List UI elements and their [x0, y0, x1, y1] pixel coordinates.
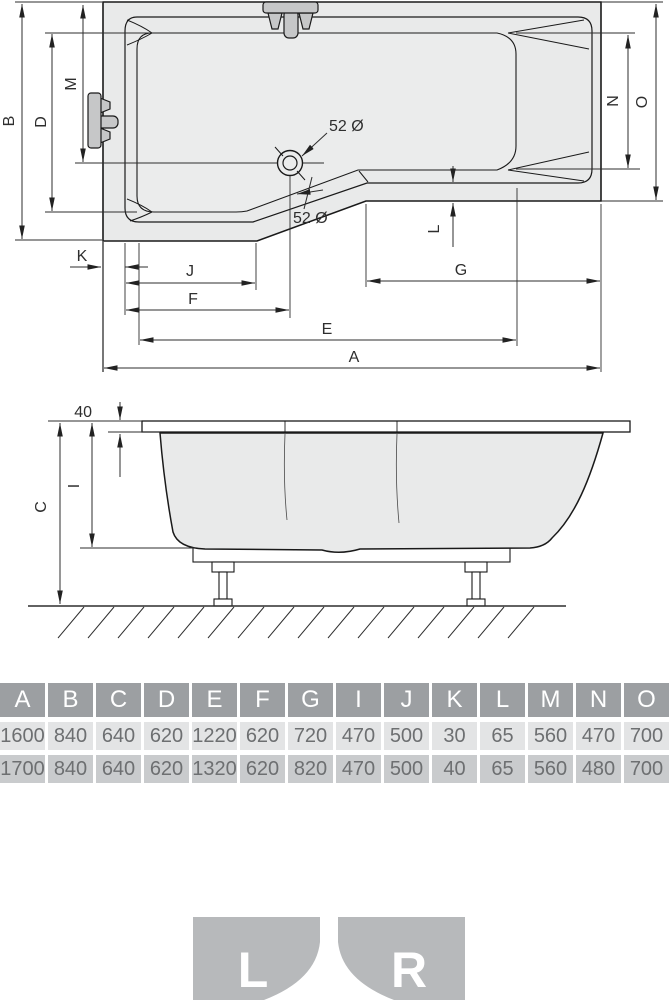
table-cell: 470 — [336, 722, 381, 750]
table-cell: 40 — [432, 755, 477, 783]
dim-label-a: A — [349, 349, 360, 366]
table-header-cell: I — [336, 683, 381, 717]
table-cell: 560 — [528, 722, 573, 750]
table-cell: 700 — [624, 722, 669, 750]
dim-label-m: M — [63, 77, 80, 90]
table-header-cell: B — [48, 683, 93, 717]
table-cell: 1600 — [0, 722, 45, 750]
table-cell: 820 — [288, 755, 333, 783]
dim-label-c: C — [33, 501, 50, 513]
table-cell: 470 — [576, 722, 621, 750]
table-header-cell: E — [192, 683, 237, 717]
dim-label-n: N — [605, 95, 622, 107]
ground-hatching — [58, 607, 534, 638]
side-view: 40 C I — [28, 402, 630, 638]
table-cell: 500 — [384, 755, 429, 783]
table-cell: 640 — [96, 755, 141, 783]
table-cell: 840 — [48, 755, 93, 783]
table-cell: 500 — [384, 722, 429, 750]
ground — [28, 606, 566, 638]
table-cell: 480 — [576, 755, 621, 783]
dimensions-table: ABCDEFGIJKLMNO16008406406201220620720470… — [0, 683, 669, 783]
table-cell: 560 — [528, 755, 573, 783]
dim-label-e: E — [322, 321, 333, 338]
table-cell: 65 — [480, 722, 525, 750]
table-header-cell: F — [240, 683, 285, 717]
mixer-bar — [88, 93, 101, 148]
overflow-diameter-label: 52 Ø — [293, 210, 328, 227]
variant-left-button[interactable]: L — [193, 917, 320, 1000]
table-cell: 620 — [144, 755, 189, 783]
table-header-cell: N — [576, 683, 621, 717]
table-cell: 65 — [480, 755, 525, 783]
table-cell: 30 — [432, 722, 477, 750]
table-cell: 700 — [624, 755, 669, 783]
table-cell: 1220 — [192, 722, 237, 750]
top-view: B D M N O L K J F E A G 52 Ø 52 Ø — [1, 2, 663, 372]
table-header-cell: G — [288, 683, 333, 717]
tub-body-profile — [160, 433, 603, 552]
table-cell: 620 — [240, 755, 285, 783]
table-header-cell: C — [96, 683, 141, 717]
orientation-variants: L R — [0, 915, 669, 1000]
support-legs — [212, 562, 487, 606]
mixer-bar — [263, 2, 318, 13]
table-cell: 620 — [240, 722, 285, 750]
dim-label-d: D — [33, 116, 50, 128]
bathtub-technical-drawing: B D M N O L K J F E A G 52 Ø 52 Ø — [0, 0, 669, 670]
table-cell: 840 — [48, 722, 93, 750]
table-header-cell: O — [624, 683, 669, 717]
table-header-cell: M — [528, 683, 573, 717]
table-header-cell: K — [432, 683, 477, 717]
table-cell: 620 — [144, 722, 189, 750]
table-header-cell: A — [0, 683, 45, 717]
table-cell: 1320 — [192, 755, 237, 783]
table-cell: 470 — [336, 755, 381, 783]
variant-right-button[interactable]: R — [338, 917, 465, 1000]
dim-label-i: I — [66, 484, 83, 488]
dim-label-j: J — [186, 263, 194, 280]
table-cell: 720 — [288, 722, 333, 750]
bathtub-spec-sheet: B D M N O L K J F E A G 52 Ø 52 Ø — [0, 0, 669, 1000]
dim-label-l: L — [426, 224, 443, 233]
table-cell: 640 — [96, 722, 141, 750]
dim-label-o: O — [634, 96, 651, 108]
rim-thickness-label: 40 — [74, 404, 92, 421]
variant-right-label: R — [391, 942, 427, 998]
dim-label-g: G — [455, 262, 467, 279]
dim-label-f: F — [188, 291, 198, 308]
dim-label-b: B — [1, 116, 18, 127]
table-header-cell: D — [144, 683, 189, 717]
variant-left-label: L — [238, 942, 269, 998]
table-cell: 1700 — [0, 755, 45, 783]
mixer-spout — [284, 10, 298, 38]
rim-slab — [142, 421, 630, 432]
table-header-cell: J — [384, 683, 429, 717]
dim-label-k: K — [77, 248, 88, 265]
table-header-cell: L — [480, 683, 525, 717]
drain-diameter-label: 52 Ø — [329, 118, 364, 135]
